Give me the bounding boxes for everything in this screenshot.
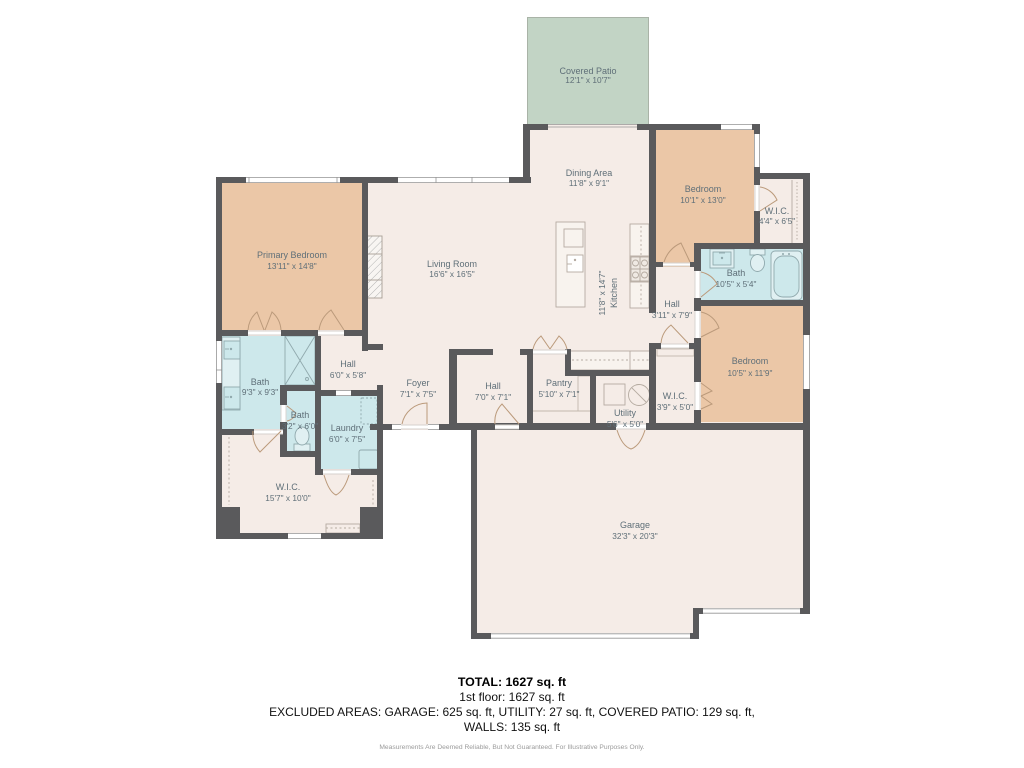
svg-text:4'4" x 6'5": 4'4" x 6'5" (759, 216, 795, 226)
svg-text:11'8" x 14'7": 11'8" x 14'7" (597, 271, 607, 316)
svg-text:Hall: Hall (664, 299, 680, 309)
svg-text:W.I.C.: W.I.C. (663, 391, 688, 401)
svg-text:5'10" x 7'1": 5'10" x 7'1" (539, 389, 580, 399)
svg-text:TOTAL: 1627 sq. ft: TOTAL: 1627 sq. ft (458, 675, 566, 689)
svg-text:Bath: Bath (291, 410, 310, 420)
svg-text:WALLS: 135 sq. ft: WALLS: 135 sq. ft (464, 720, 561, 734)
svg-text:Laundry: Laundry (331, 423, 364, 433)
svg-text:W.I.C.: W.I.C. (765, 206, 790, 216)
svg-text:Utility: Utility (614, 408, 636, 418)
svg-text:3'11" x 7'9": 3'11" x 7'9" (652, 310, 692, 320)
svg-text:10'5" x 5'4": 10'5" x 5'4" (716, 279, 757, 289)
svg-text:7'0" x 7'1": 7'0" x 7'1" (475, 392, 511, 402)
svg-text:Measurements Are Deemed Reliab: Measurements Are Deemed Reliable, But No… (379, 744, 644, 751)
svg-text:10'5" x 11'9": 10'5" x 11'9" (728, 368, 773, 378)
svg-text:9'3" x 9'3": 9'3" x 9'3" (242, 387, 278, 397)
svg-text:3'9" x 5'0": 3'9" x 5'0" (657, 402, 693, 412)
svg-text:Pantry: Pantry (546, 378, 573, 388)
svg-text:7'1" x 7'5": 7'1" x 7'5" (400, 389, 436, 399)
svg-text:Bath: Bath (727, 268, 746, 278)
svg-text:10'1" x 13'0": 10'1" x 13'0" (680, 195, 726, 205)
svg-text:11'8" x 9'1": 11'8" x 9'1" (569, 178, 609, 188)
svg-text:Bedroom: Bedroom (685, 184, 722, 194)
svg-text:Kitchen: Kitchen (609, 278, 619, 308)
svg-text:6'0" x 5'8": 6'0" x 5'8" (330, 370, 366, 380)
svg-text:15'7" x 10'0": 15'7" x 10'0" (265, 493, 311, 503)
svg-text:W.I.C.: W.I.C. (276, 482, 301, 492)
svg-text:3'2" x 6'0": 3'2" x 6'0" (282, 421, 318, 431)
svg-text:Garage: Garage (620, 520, 650, 530)
svg-text:16'6" x 16'5": 16'6" x 16'5" (429, 269, 475, 279)
svg-text:Dining Area: Dining Area (566, 168, 613, 178)
svg-text:Foyer: Foyer (406, 378, 429, 388)
svg-text:Hall: Hall (485, 381, 501, 391)
svg-text:Primary Bedroom: Primary Bedroom (257, 250, 327, 260)
svg-text:5'6" x 5'0": 5'6" x 5'0" (607, 419, 643, 429)
svg-text:Hall: Hall (340, 359, 356, 369)
svg-text:EXCLUDED AREAS: GARAGE: 625 sq: EXCLUDED AREAS: GARAGE: 625 sq. ft, UTIL… (269, 705, 755, 719)
svg-text:32'3" x 20'3": 32'3" x 20'3" (612, 531, 658, 541)
svg-text:Bedroom: Bedroom (732, 356, 769, 366)
svg-text:12'1" x 10'7": 12'1" x 10'7" (565, 75, 611, 85)
svg-text:1st floor: 1627 sq. ft: 1st floor: 1627 sq. ft (459, 690, 565, 704)
svg-text:13'11" x 14'8": 13'11" x 14'8" (267, 261, 317, 271)
svg-text:Living Room: Living Room (427, 259, 477, 269)
svg-text:6'0" x 7'5": 6'0" x 7'5" (329, 434, 365, 444)
svg-text:Bath: Bath (251, 377, 270, 387)
